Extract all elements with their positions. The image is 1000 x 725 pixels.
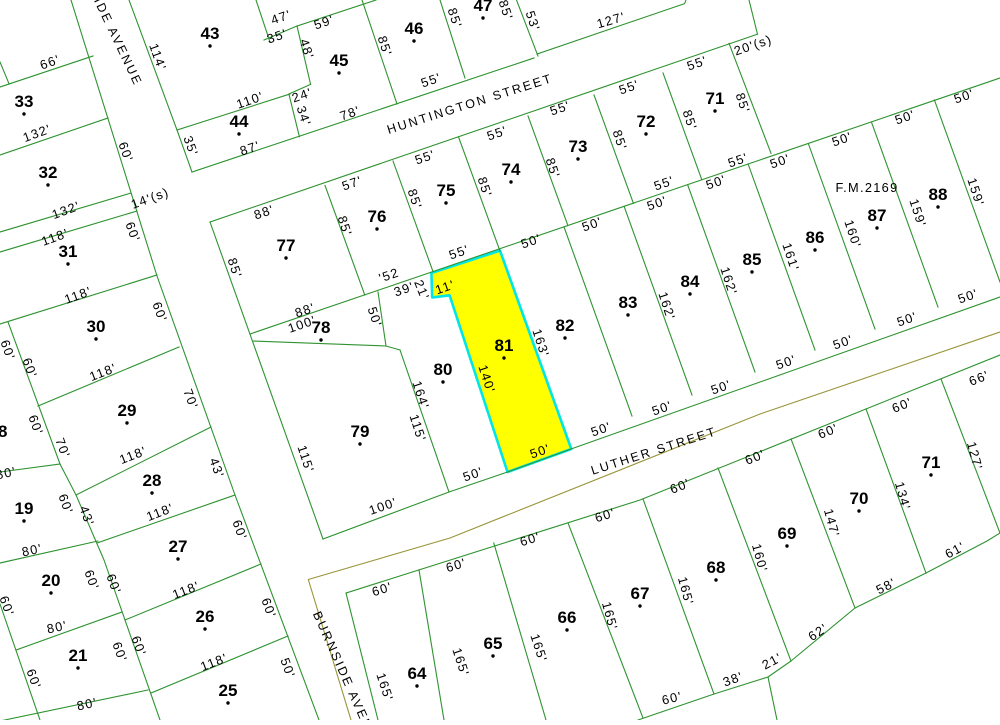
- svg-text:81: 81: [495, 336, 514, 355]
- svg-text:44: 44: [230, 112, 249, 131]
- svg-text:47: 47: [474, 0, 493, 15]
- svg-text:20: 20: [42, 571, 61, 590]
- svg-text:85: 85: [743, 250, 762, 269]
- svg-text:32: 32: [39, 163, 58, 182]
- svg-text:43: 43: [201, 24, 220, 43]
- svg-text:74: 74: [502, 160, 521, 179]
- svg-text:21: 21: [69, 646, 88, 665]
- svg-text:69: 69: [778, 524, 797, 543]
- svg-text:31: 31: [59, 242, 78, 261]
- svg-text:28: 28: [143, 471, 162, 490]
- svg-text:33: 33: [15, 92, 34, 111]
- svg-text:84: 84: [681, 272, 700, 291]
- svg-text:77: 77: [277, 236, 296, 255]
- svg-text:83: 83: [619, 293, 638, 312]
- svg-text:87: 87: [868, 206, 887, 225]
- svg-text:70: 70: [850, 489, 869, 508]
- svg-text:65: 65: [484, 634, 503, 653]
- svg-text:71: 71: [922, 453, 941, 472]
- svg-text:82: 82: [556, 316, 575, 335]
- svg-text:27: 27: [169, 537, 188, 556]
- svg-text:73: 73: [569, 137, 588, 156]
- svg-text:78: 78: [312, 318, 331, 337]
- svg-text:80: 80: [434, 360, 453, 379]
- svg-text:29: 29: [118, 401, 137, 420]
- svg-text:30: 30: [87, 317, 106, 336]
- svg-text:88: 88: [929, 185, 948, 204]
- svg-text:64: 64: [408, 664, 427, 683]
- svg-text:25: 25: [219, 681, 238, 700]
- svg-text:45: 45: [330, 51, 349, 70]
- svg-text:71: 71: [706, 89, 725, 108]
- svg-text:46: 46: [405, 19, 424, 38]
- svg-text:19: 19: [15, 499, 34, 518]
- svg-text:86: 86: [806, 228, 825, 247]
- svg-text:75: 75: [437, 181, 456, 200]
- svg-text:72: 72: [637, 112, 656, 131]
- svg-text:68: 68: [707, 558, 726, 577]
- svg-text:26: 26: [196, 607, 215, 626]
- svg-text:79: 79: [351, 422, 370, 441]
- svg-text:18: 18: [0, 422, 7, 441]
- svg-text:76: 76: [368, 207, 387, 226]
- svg-text:66: 66: [558, 608, 577, 627]
- svg-text:F.M.2169: F.M.2169: [835, 180, 898, 195]
- svg-text:67: 67: [631, 584, 650, 603]
